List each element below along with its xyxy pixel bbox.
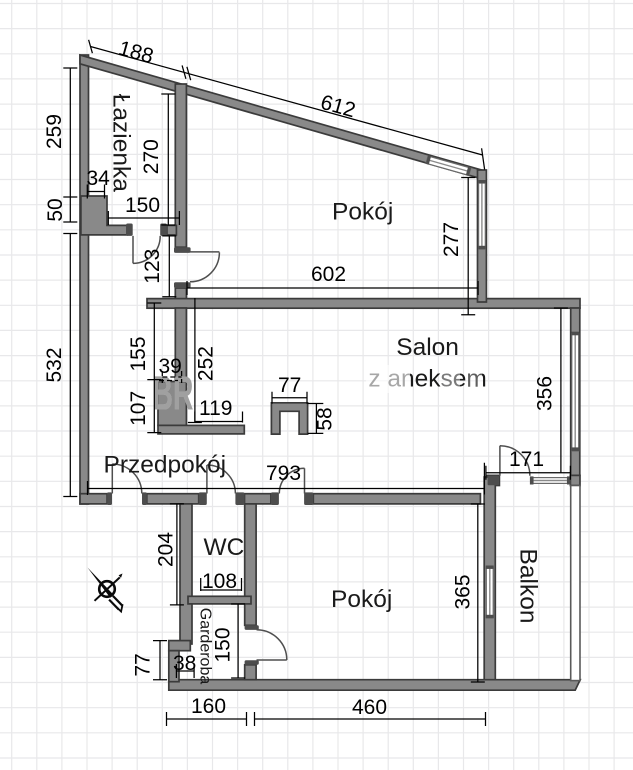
svg-text:160: 160 [191,695,226,718]
svg-text:107: 107 [127,391,150,426]
svg-text:119: 119 [199,397,232,420]
svg-text:150: 150 [212,627,235,662]
svg-text:77: 77 [132,653,155,676]
svg-text:Przedpokój: Przedpokój [104,452,227,479]
svg-text:34: 34 [87,167,111,190]
svg-text:Łazienka: Łazienka [107,94,134,192]
svg-text:WC: WC [204,534,245,561]
svg-text:Pokój: Pokój [332,199,393,226]
svg-text:204: 204 [155,532,178,567]
svg-text:252: 252 [195,346,218,381]
svg-text:356: 356 [534,376,557,411]
svg-text:Balkon: Balkon [515,549,542,624]
svg-text:460: 460 [352,696,387,719]
svg-text:793: 793 [266,462,301,485]
svg-text:108: 108 [202,570,237,593]
svg-text:Salon: Salon [396,334,459,361]
svg-text:50: 50 [44,198,67,221]
svg-text:150: 150 [125,194,160,217]
svg-text:171: 171 [509,448,544,471]
svg-text:259: 259 [43,114,66,149]
svg-text:123: 123 [141,249,164,284]
svg-text:38: 38 [173,652,196,675]
svg-text:Garderoba: Garderoba [196,608,213,685]
svg-text:77: 77 [278,374,301,397]
svg-text:365: 365 [452,574,475,609]
svg-text:602: 602 [311,263,346,286]
svg-text:Pokój: Pokój [331,586,392,613]
svg-text:39: 39 [159,355,182,378]
svg-text:532: 532 [43,347,66,382]
svg-text:155: 155 [127,336,150,371]
svg-text:58: 58 [314,407,337,430]
svg-text:277: 277 [440,222,463,257]
svg-text:270: 270 [140,139,163,174]
